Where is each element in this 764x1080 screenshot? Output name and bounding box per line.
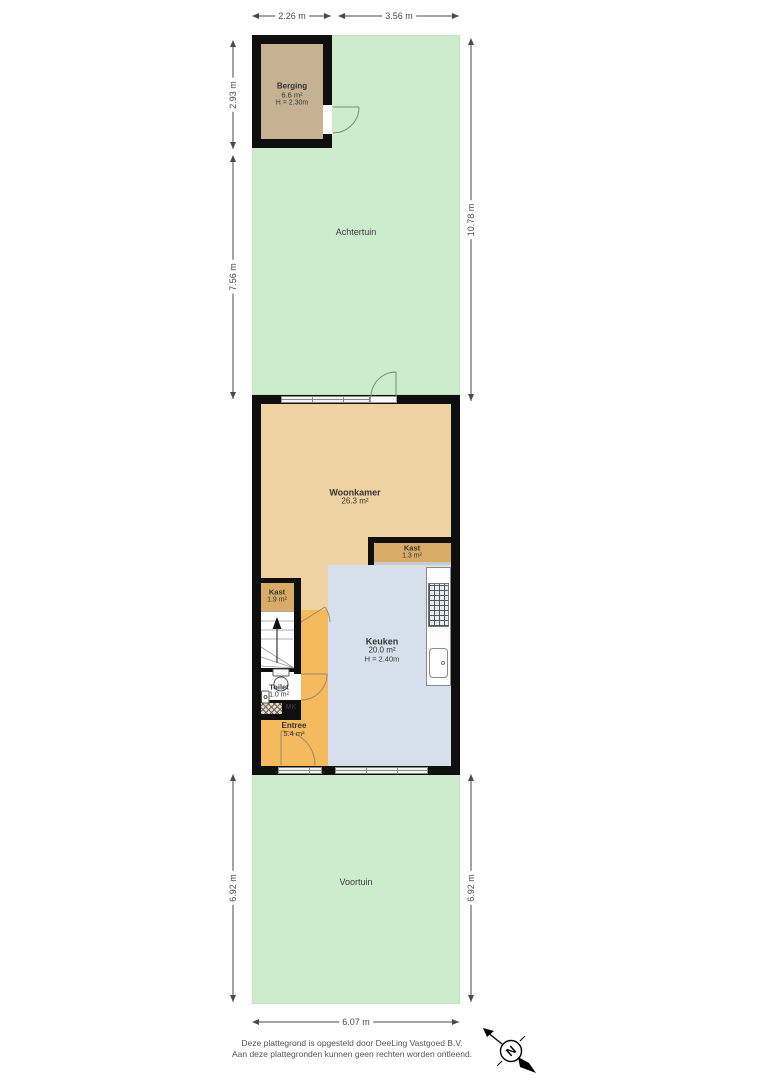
stairs-divider — [261, 611, 294, 612]
stove — [428, 583, 449, 627]
voortuin-garden — [252, 774, 460, 1004]
entree-inner-wall — [252, 714, 301, 720]
dim-achtertuin-left: 7.56 m — [228, 260, 238, 294]
compass-n-letter: N — [503, 1043, 519, 1059]
kast-woonkamer-label: Kast 1.3 m² — [402, 544, 422, 559]
dim-achtertuin-right: 10.78 m — [466, 201, 476, 240]
dim-berging-depth: 2.93 m — [228, 78, 238, 112]
kast-woonkamer-band — [374, 562, 451, 565]
footer-disclaimer-line1: Deze plattegrond is opgesteld door DeeLi… — [241, 1038, 462, 1048]
woonkamer-label: Woonkamer 26.3 m² — [329, 487, 380, 506]
meterkast-box — [261, 703, 282, 714]
frontdoor-band — [278, 767, 322, 774]
stairs — [261, 611, 294, 668]
kast-hal-label: Kast 1.9 m² — [267, 588, 287, 603]
backdoor-gap — [370, 396, 397, 403]
entree-label: Entree 5.4 m² — [282, 722, 307, 738]
dim-voortuin-width: 6.07 m — [339, 1017, 373, 1027]
voortuin-label: Voortuin — [339, 877, 372, 887]
compass-north-icon: N — [480, 1025, 540, 1080]
achtertuin-label: Achtertuin — [336, 227, 377, 237]
meterkast-label: MK — [286, 704, 297, 712]
dim-voortuin-right: 6.92 m — [466, 871, 476, 905]
keuken-label: Keuken 20.0 m² H = 2.40m — [365, 636, 400, 663]
toilet-label: Toilet 1.0 m² — [269, 683, 289, 698]
toilet-door-gap — [294, 674, 301, 700]
dim-achtertuin-width: 3.56 m — [382, 11, 416, 21]
floorplan-page: 2.26 m 3.56 m 2.93 m 7.56 m 10.78 m 6.92… — [0, 0, 764, 1080]
footer-disclaimer-line2: Aan deze plattegronden kunnen geen recht… — [232, 1049, 472, 1059]
berging-label: Berging 6.6 m² H = 2.30m — [276, 82, 309, 107]
window-voortuin — [335, 767, 428, 774]
dim-voortuin-left: 6.92 m — [228, 871, 238, 905]
window-achtertuin — [281, 396, 370, 403]
dim-berging-width: 2.26 m — [275, 11, 309, 21]
kitchen-sink — [429, 648, 448, 678]
berging-door-gap — [323, 105, 332, 134]
